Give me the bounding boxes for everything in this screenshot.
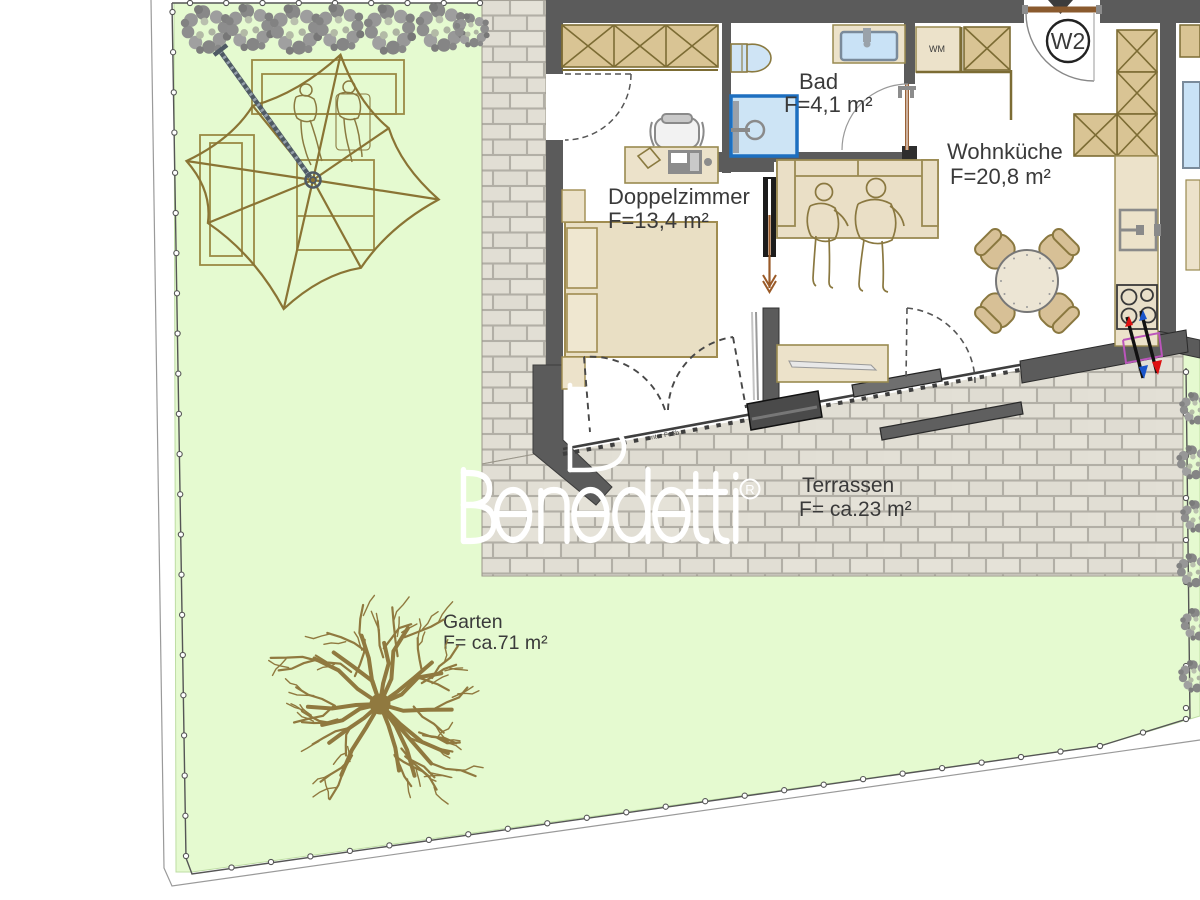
svg-text:Wohnküche: Wohnküche	[947, 139, 1063, 164]
svg-text:Terrassen: Terrassen	[802, 474, 894, 497]
svg-text:F=13,4 m²: F=13,4 m²	[608, 208, 709, 233]
svg-text:Doppelzimmer: Doppelzimmer	[608, 184, 750, 209]
svg-text:W2: W2	[1051, 28, 1086, 54]
svg-text:F=20,8 m²: F=20,8 m²	[950, 164, 1051, 189]
svg-text:R: R	[745, 482, 754, 497]
svg-text:F=4,1 m²: F=4,1 m²	[784, 92, 873, 117]
svg-text:Bad: Bad	[799, 69, 838, 94]
svg-text:Garten: Garten	[443, 611, 503, 633]
svg-text:F= ca.71 m²: F= ca.71 m²	[443, 632, 548, 654]
svg-text:WM: WM	[929, 44, 945, 54]
svg-text:F= ca.23 m²: F= ca.23 m²	[799, 498, 912, 521]
